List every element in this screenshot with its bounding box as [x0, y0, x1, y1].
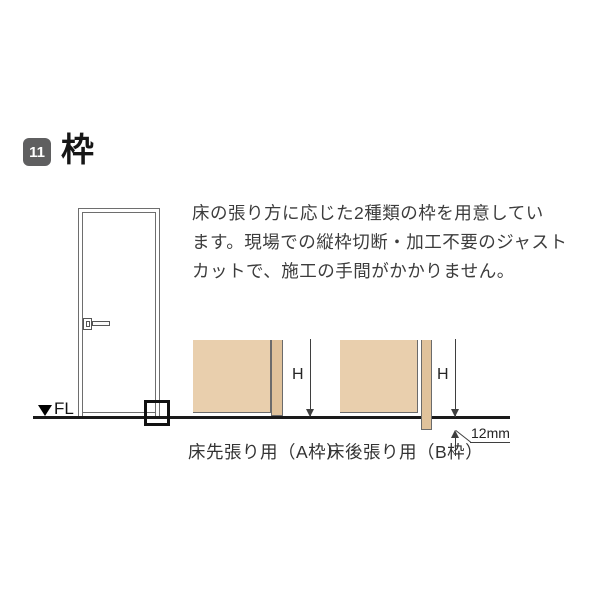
door-handle-rosette: [86, 321, 90, 327]
intro-line: ます。現場での縦枠切断・加工不要のジャスト: [192, 228, 592, 257]
floor-line: [33, 416, 510, 419]
section-b-wall: [340, 340, 418, 413]
section-b-vertical-frame: [421, 340, 432, 430]
section-a-down-arrow-icon: [306, 409, 314, 417]
section-a-height-label: H: [292, 366, 304, 384]
door-panel-outline: [82, 212, 156, 418]
fl-marker-triangle-icon: [38, 405, 52, 416]
section-a-caption: 床先張り用（A枠）: [188, 439, 344, 464]
section-a-wall: [193, 340, 271, 413]
section-b-height-dimension-line: [455, 339, 456, 417]
section-a-vertical-frame: [271, 340, 283, 416]
intro-line: 床の張り方に応じた2種類の枠を用意してい: [192, 199, 592, 228]
section-title: 枠: [61, 131, 94, 169]
door-handle-lever-icon: [92, 321, 110, 326]
section-a-height-dimension-line: [310, 339, 311, 416]
detail-highlight-box: [144, 400, 170, 426]
section-number-badge: 11: [23, 138, 51, 166]
catalog-page: 11 枠 床の張り方に応じた2種類の枠を用意してい ます。現場での縦枠切断・加工…: [0, 0, 600, 600]
section-b-caption: 床後張り用（B枠）: [327, 439, 483, 464]
intro-line: カットで、施工の手間がかかりません。: [192, 257, 592, 286]
intro-paragraph: 床の張り方に応じた2種類の枠を用意してい ます。現場での縦枠切断・加工不要のジャ…: [192, 199, 592, 286]
section-b-down-arrow-icon: [451, 409, 459, 417]
section-b-height-label: H: [437, 366, 449, 384]
